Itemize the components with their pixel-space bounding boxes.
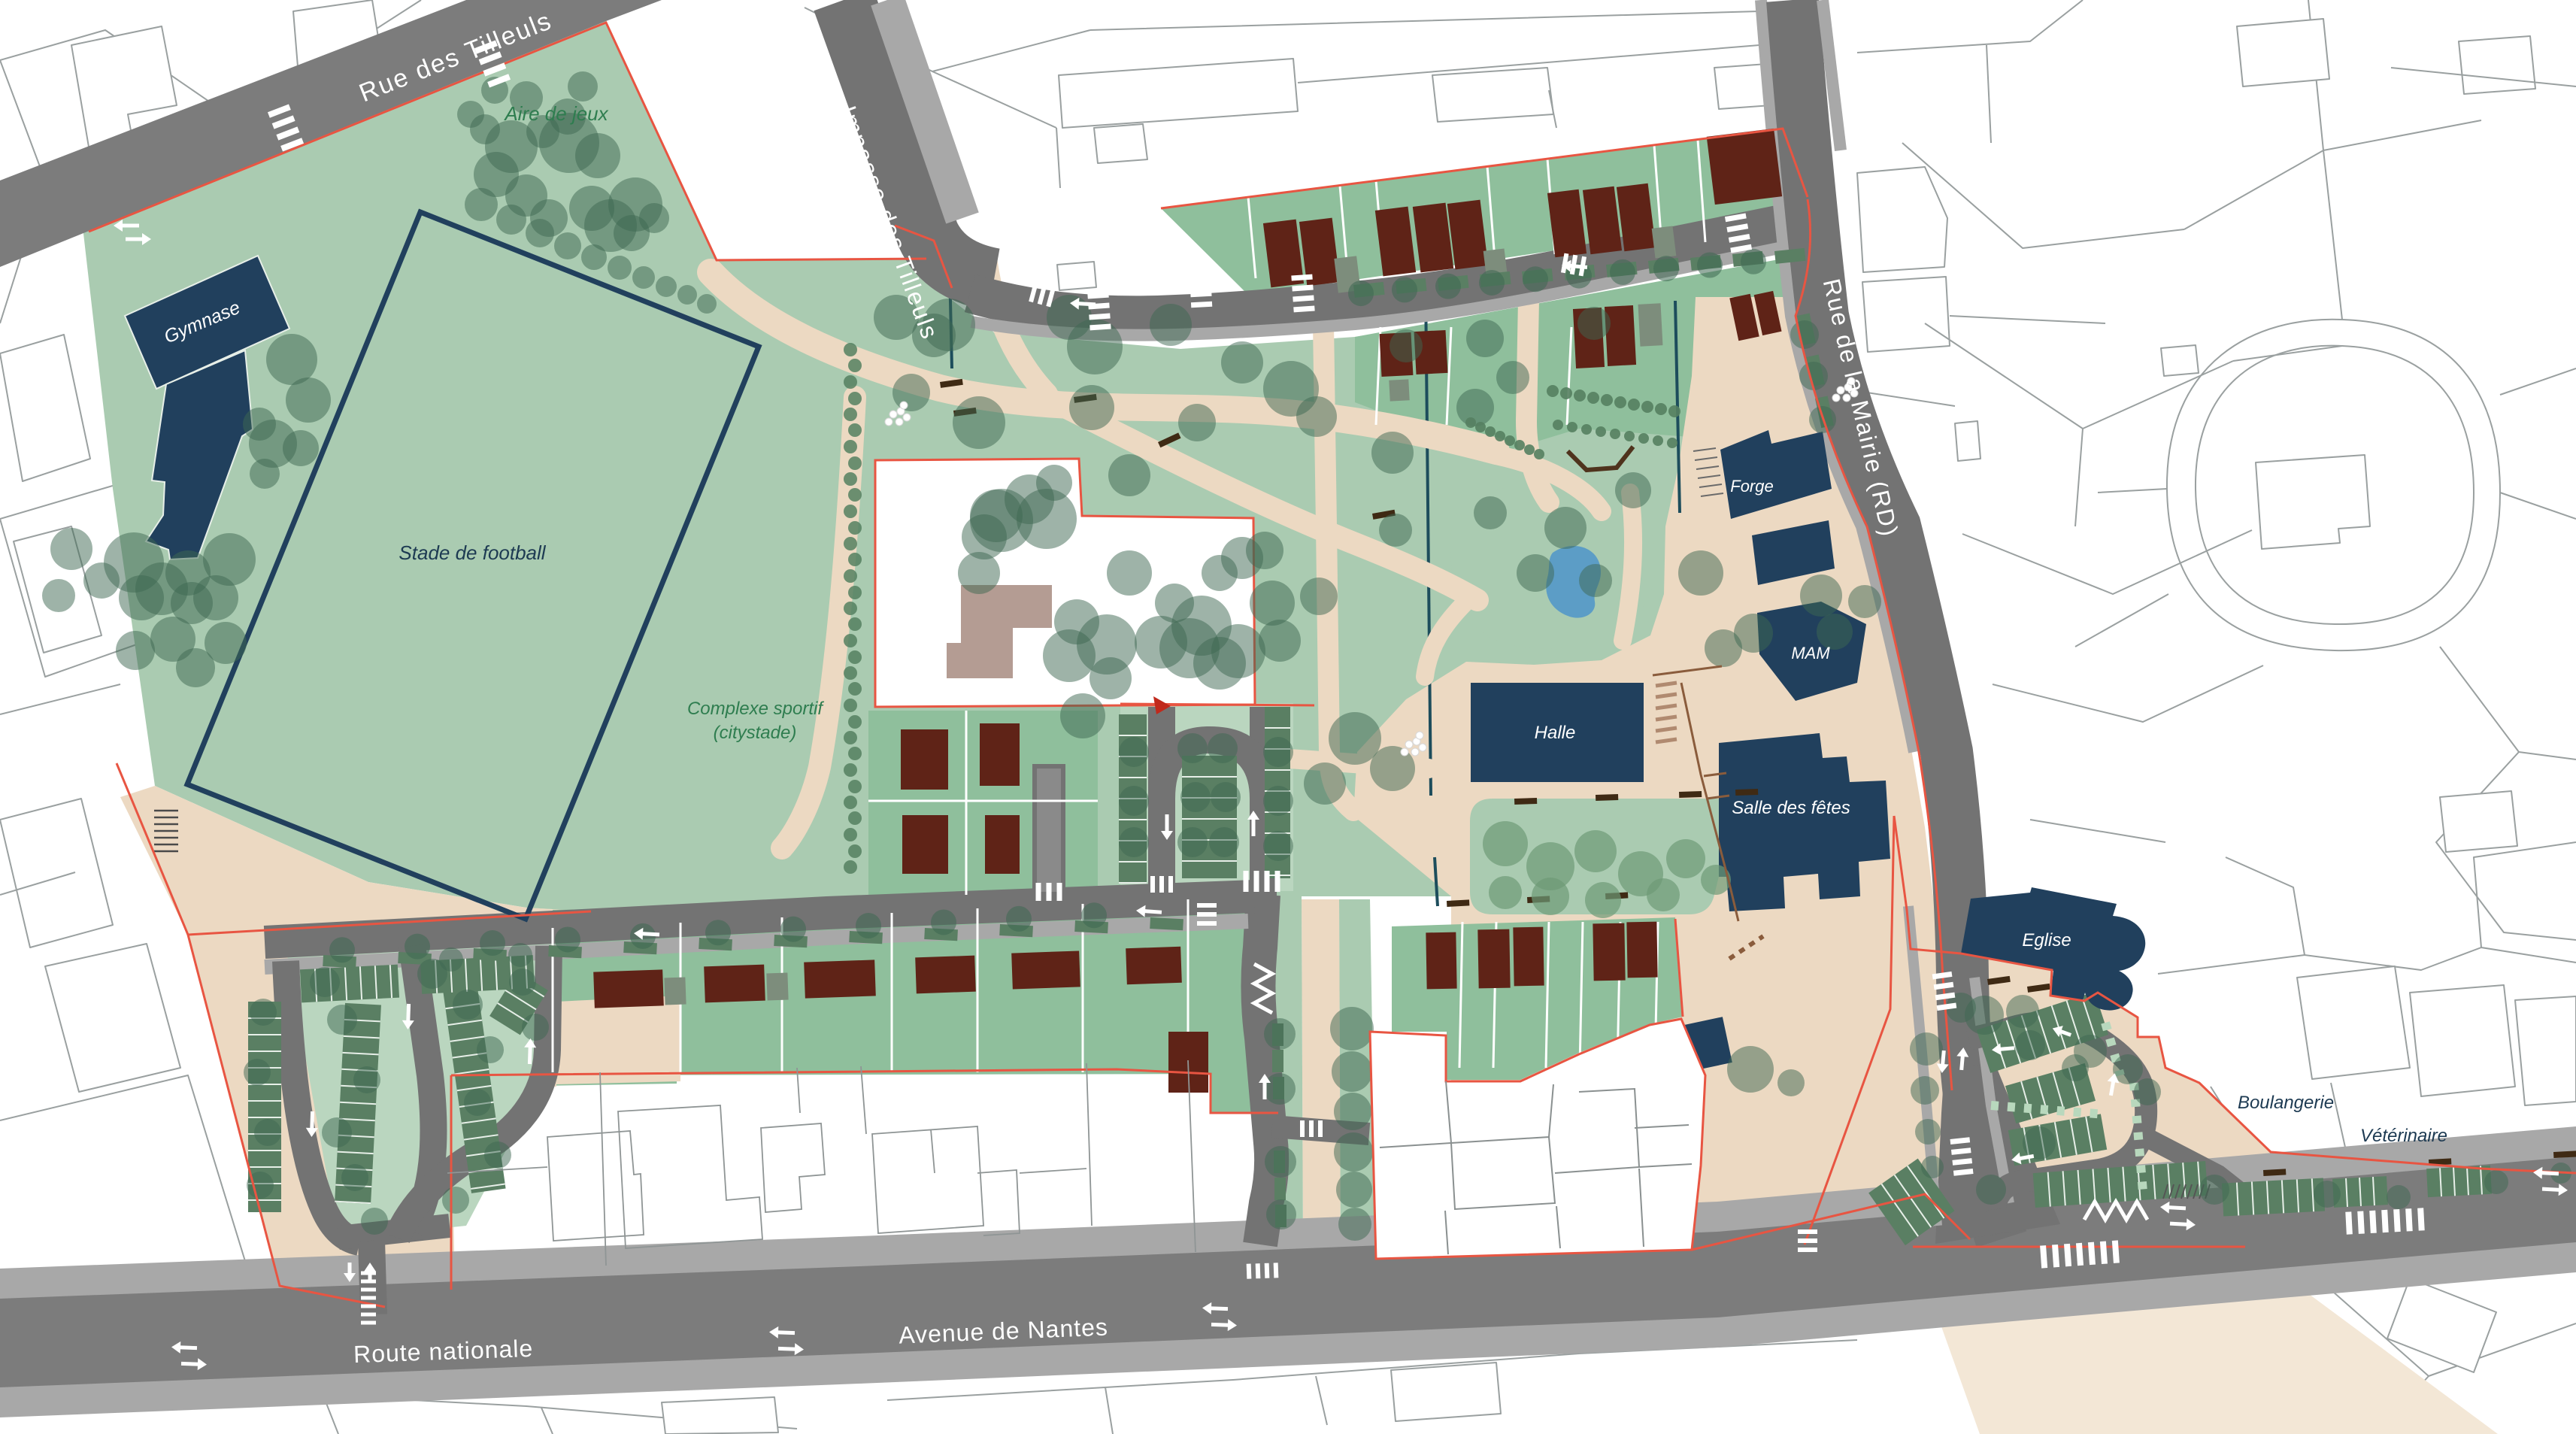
svg-text:Stade de football: Stade de football bbox=[399, 541, 546, 564]
svg-text:Salle des fêtes: Salle des fêtes bbox=[1732, 798, 1850, 818]
svg-text:Forge: Forge bbox=[1730, 477, 1773, 496]
svg-text:(citystade): (citystade) bbox=[714, 723, 797, 743]
svg-text:Aire de jeux: Aire de jeux bbox=[503, 102, 608, 125]
svg-text:MAM: MAM bbox=[1791, 644, 1830, 662]
svg-text:Vétérinaire: Vétérinaire bbox=[2360, 1126, 2447, 1146]
svg-text:Complexe sportif: Complexe sportif bbox=[687, 699, 824, 719]
svg-text:Eglise: Eglise bbox=[2022, 930, 2071, 950]
svg-text:Halle: Halle bbox=[1535, 723, 1576, 743]
svg-text:Boulangerie: Boulangerie bbox=[2238, 1093, 2334, 1113]
